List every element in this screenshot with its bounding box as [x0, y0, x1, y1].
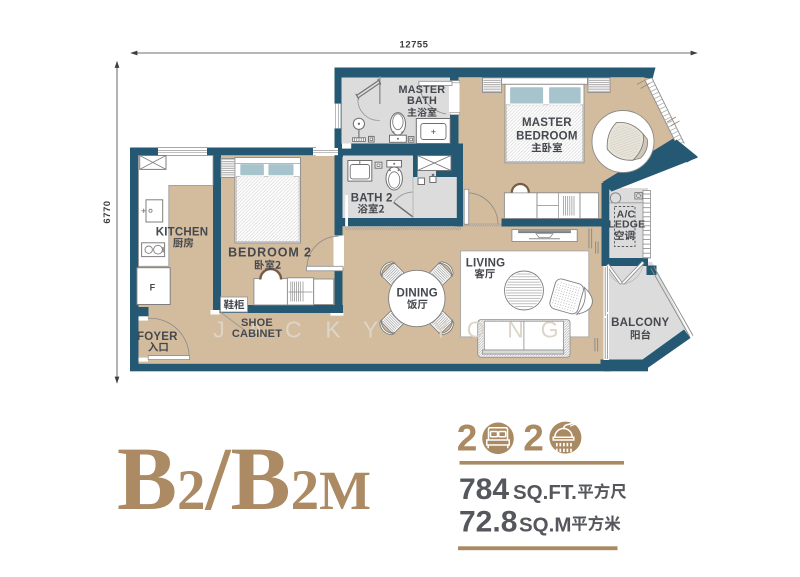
svg-text:Y: Y — [433, 317, 448, 343]
svg-text:SQ.M: SQ.M — [519, 514, 571, 537]
svg-text:MASTER: MASTER — [522, 117, 572, 129]
svg-text:N: N — [507, 317, 524, 343]
svg-text:K: K — [325, 317, 341, 343]
svg-text:J: J — [213, 317, 225, 343]
svg-text:SQ.FT.: SQ.FT. — [513, 481, 577, 504]
svg-text:BALCONY: BALCONY — [611, 317, 669, 329]
svg-text:Y: Y — [363, 317, 378, 343]
svg-text:O: O — [467, 317, 485, 343]
svg-text:CABINET: CABINET — [232, 328, 282, 340]
svg-text:KITCHEN: KITCHEN — [156, 227, 209, 239]
svg-text:G: G — [541, 317, 559, 343]
svg-text:LIVING: LIVING — [466, 257, 506, 269]
svg-text:784: 784 — [459, 473, 509, 506]
svg-text:2: 2 — [523, 418, 544, 459]
svg-text:F: F — [150, 283, 156, 293]
svg-text:6770: 6770 — [102, 200, 113, 223]
svg-text:BATH 2: BATH 2 — [351, 192, 393, 204]
svg-text:72.8: 72.8 — [459, 506, 517, 539]
svg-text:BEDROOM: BEDROOM — [516, 131, 577, 143]
svg-text:MASTER: MASTER — [399, 84, 446, 96]
svg-text:FOYER: FOYER — [137, 331, 178, 343]
svg-text:LEDGE: LEDGE — [608, 219, 645, 231]
svg-text:BEDROOM 2: BEDROOM 2 — [228, 245, 312, 259]
svg-text:DINING: DINING — [396, 288, 437, 300]
svg-text:C: C — [285, 317, 302, 343]
svg-text:BATH: BATH — [407, 95, 437, 107]
svg-text:2: 2 — [457, 418, 478, 459]
svg-text:12755: 12755 — [400, 40, 429, 51]
